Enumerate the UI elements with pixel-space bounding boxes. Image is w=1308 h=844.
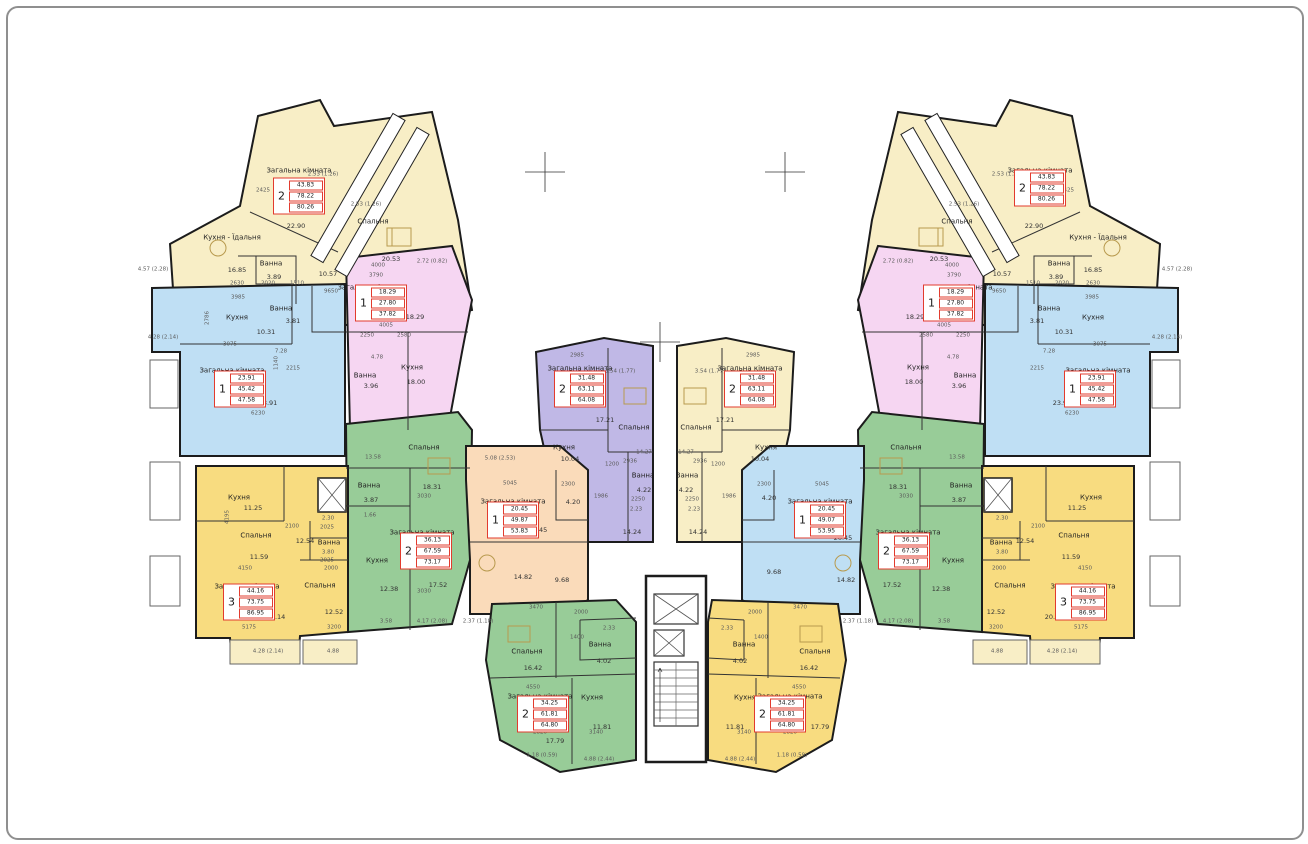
room-label-bedroom: Спальня — [240, 533, 271, 540]
room-label-bath: Ванна — [632, 473, 655, 480]
room-label-bedroom: Спальня — [941, 219, 972, 226]
room-area: 14.82 — [514, 574, 533, 581]
area-value: 86.95 — [1071, 608, 1105, 618]
room-area: 11.25 — [244, 505, 263, 512]
area-value: 31.48 — [570, 373, 604, 383]
area-value: 64.08 — [740, 395, 774, 405]
room-label-bedroom: Спальня — [408, 445, 439, 452]
area-value: 80.26 — [289, 202, 323, 212]
dimension: 1.18 (0.59) — [527, 753, 558, 759]
dimension: 1510 — [1026, 281, 1040, 287]
room-area: 12.54 — [1016, 538, 1035, 545]
room-area: 14.24 — [623, 529, 642, 536]
dimension: 2580 — [919, 333, 933, 339]
dimension: 2.33 — [721, 626, 733, 632]
room-area: 11.25 — [1068, 505, 1087, 512]
dimension: 2985 — [570, 353, 584, 359]
dimension: 4.88 — [327, 649, 339, 655]
dimension: 2936 — [623, 459, 637, 465]
dimension: 4005 — [379, 323, 393, 329]
dimension: 4005 — [937, 323, 951, 329]
dimension: 5045 — [503, 481, 517, 487]
room-area: 16.42 — [524, 665, 543, 672]
room-label-kitchen: Кухня — [755, 445, 777, 452]
room-label-kitchen: Кухня — [553, 445, 575, 452]
room-label-bath: Ванна — [318, 540, 341, 547]
apartment-stat-table: 2 31.4863.1164.08 — [554, 371, 606, 408]
room-area: 9.68 — [555, 577, 569, 584]
dimension: 3.80 — [322, 550, 334, 556]
room-label-kitchen: Кухня — [581, 695, 603, 702]
apartment-rooms-count: 2 — [556, 373, 569, 406]
room-area: 17.21 — [716, 417, 735, 424]
area-value: 49.87 — [503, 515, 537, 525]
area-value: 23.91 — [1080, 373, 1114, 383]
room-label-bedroom: Спальня — [994, 583, 1025, 590]
dimension: 2.37 (1.18) — [463, 619, 494, 625]
room-label-bath: Ванна — [954, 373, 977, 380]
room-label-bath: Ванна — [270, 306, 293, 313]
room-area: 10.57 — [993, 271, 1012, 278]
area-value: 44.16 — [239, 586, 273, 596]
wing-elevator-left — [318, 478, 346, 512]
dimension: 2.37 (1.18) — [843, 619, 874, 625]
dimension: 2250 — [631, 497, 645, 503]
dimension: 4.88 (2.44) — [584, 757, 615, 763]
dimension: 6230 — [251, 411, 265, 417]
dimension: 3.58 — [938, 619, 950, 625]
apartment-stat-table: 1 20.4549.8753.83 — [487, 502, 539, 539]
apartment-stat-table: 2 34.2561.8164.80 — [517, 696, 569, 733]
area-value: 36.13 — [894, 535, 928, 545]
area-value: 49.07 — [810, 515, 844, 525]
dimension: 2936 — [693, 459, 707, 465]
apartment-rooms-count: 2 — [519, 698, 532, 731]
area-value: 43.83 — [1030, 172, 1064, 182]
room-area: 12.54 — [296, 538, 315, 545]
dimension: 2250 — [685, 497, 699, 503]
apartment-rooms-count: 2 — [756, 698, 769, 731]
apartment-rooms-count: 2 — [402, 535, 415, 568]
apartment-rooms-count: 1 — [1066, 373, 1079, 406]
room-label-bath: Ванна — [260, 261, 283, 268]
dimension: 2100 — [285, 524, 299, 530]
room-label-bedroom: Спальня — [890, 445, 921, 452]
dimension: 4.57 (2.28) — [138, 267, 169, 273]
dimension: 3790 — [369, 273, 383, 279]
area-value: 64.08 — [570, 395, 604, 405]
dimension: 3790 — [947, 273, 961, 279]
dimension: 9650 — [324, 289, 338, 295]
area-value: 73.17 — [416, 557, 450, 567]
room-label-kitchen-dining: Кухня - Їдальня — [203, 235, 261, 242]
area-value: 36.13 — [416, 535, 450, 545]
room-label-kitchen: Кухня — [942, 558, 964, 565]
room-area: 18.31 — [889, 484, 908, 491]
room-label-bath: Ванна — [1038, 306, 1061, 313]
dimension: 4.17 (2.08) — [417, 619, 448, 625]
room-label-bedroom: Спальня — [799, 649, 830, 656]
area-value: 63.11 — [570, 384, 604, 394]
room-area: 22.90 — [1025, 223, 1044, 230]
dimension: 2.23 — [688, 507, 700, 513]
apartment-stat-table: 2 43.8378.2280.26 — [273, 178, 325, 215]
apartment-rooms-count: 1 — [796, 504, 809, 537]
area-value: 23.91 — [230, 373, 264, 383]
dimension: 2100 — [1031, 524, 1045, 530]
dimension: 14.27 — [678, 450, 694, 456]
room-area: 4.22 — [679, 487, 693, 494]
room-area: 18.29 — [406, 314, 425, 321]
area-value: 80.26 — [1030, 194, 1064, 204]
dimension: 3470 — [793, 605, 807, 611]
room-area: 4.20 — [566, 499, 580, 506]
room-label-bath: Ванна — [1048, 261, 1071, 268]
dimension: 3985 — [231, 295, 245, 301]
dimension: 3030 — [417, 494, 431, 500]
dimension: 2250 — [956, 333, 970, 339]
room-area: 10.31 — [257, 329, 276, 336]
dimension: 4.57 (2.28) — [1162, 267, 1193, 273]
room-area: 18.00 — [905, 379, 924, 386]
room-area: 11.59 — [1062, 554, 1081, 561]
area-value: 64.80 — [770, 720, 804, 730]
apartment-rooms-count: 2 — [1016, 172, 1029, 205]
dimension: 4.28 (2.14) — [148, 335, 179, 341]
room-area: 3.96 — [364, 383, 378, 390]
dimension: 2025 — [320, 525, 334, 531]
dimension: 5175 — [1074, 625, 1088, 631]
room-area: 18.00 — [407, 379, 426, 386]
dimension: 3030 — [899, 494, 913, 500]
area-value: 45.42 — [230, 384, 264, 394]
dimension: 4550 — [792, 685, 806, 691]
dimension: 7.28 — [275, 349, 287, 355]
room-area: 14.82 — [837, 577, 856, 584]
dimension: 1510 — [290, 281, 304, 287]
apartment-stat-table: 1 23.9145.4247.58 — [1064, 371, 1116, 408]
area-value: 34.25 — [533, 698, 567, 708]
area-value: 73.75 — [239, 597, 273, 607]
dimension: 3470 — [529, 605, 543, 611]
dimension: 3030 — [417, 589, 431, 595]
room-area: 3.81 — [286, 318, 300, 325]
room-area: 10.57 — [319, 271, 338, 278]
room-label-bath: Ванна — [990, 540, 1013, 547]
apartment-stat-table: 2 34.2561.8164.80 — [754, 696, 806, 733]
apartment-rooms-count: 1 — [489, 504, 502, 537]
room-label-kitchen: Кухня — [401, 365, 423, 372]
dimension: 2000 — [324, 566, 338, 572]
room-area: 4.22 — [637, 487, 651, 494]
room-area: 4.02 — [733, 658, 747, 665]
dimension: 9650 — [992, 289, 1006, 295]
dimension: 3.80 — [996, 550, 1008, 556]
room-area: 9.68 — [767, 569, 781, 576]
apartment-rooms-count: 2 — [880, 535, 893, 568]
dimension: 4.28 (2.14) — [1152, 335, 1183, 341]
dimension: 2300 — [561, 482, 575, 488]
room-area: 16.85 — [1084, 267, 1103, 274]
dimension: 1400 — [570, 635, 584, 641]
area-value: 53.95 — [810, 526, 844, 536]
dimension: 1.18 (0.59) — [777, 753, 808, 759]
room-area: 3.87 — [364, 497, 378, 504]
room-label-kitchen-dining: Кухня - Їдальня — [1069, 235, 1127, 242]
survey-crosshair — [525, 152, 805, 362]
room-label-bedroom: Спальня — [304, 583, 335, 590]
dimension: 2.72 (0.82) — [417, 259, 448, 265]
dimension: 5045 — [815, 482, 829, 488]
dimension: 14.27 — [636, 450, 652, 456]
dimension: 3200 — [989, 625, 1003, 631]
apartment-rooms-count: 3 — [225, 586, 238, 619]
apartment-stat-table: 2 36.1367.5973.17 — [400, 533, 452, 570]
room-label-bath: Ванна — [354, 373, 377, 380]
central-core — [646, 576, 706, 762]
area-value: 20.45 — [810, 504, 844, 514]
floor-plan-canvas: Загальна кімната Кухня - Їдальня 16.85 В… — [0, 0, 1308, 844]
dimension: 2.30 — [996, 516, 1008, 522]
room-area: 18.29 — [906, 314, 925, 321]
dimension: 1200 — [605, 462, 619, 468]
dimension: 4150 — [1078, 566, 1092, 572]
area-value: 61.81 — [533, 709, 567, 719]
dimension: 3075 — [1093, 342, 1107, 348]
room-label-bath: Ванна — [676, 473, 699, 480]
dimension: 3985 — [1085, 295, 1099, 301]
area-value: 27.80 — [939, 298, 973, 308]
dimension: 2630 — [1086, 281, 1100, 287]
room-label-kitchen: Кухня — [734, 695, 756, 702]
apartment-rooms-count: 1 — [216, 373, 229, 406]
apartment-stat-table: 1 18.2927.8037.82 — [355, 285, 407, 322]
dimension: 2.53 (1.26) — [949, 202, 980, 208]
room-area: 16.85 — [228, 267, 247, 274]
area-value: 20.45 — [503, 504, 537, 514]
apartment-stat-table: 2 36.1367.5973.17 — [878, 533, 930, 570]
apartment-rooms-count: 2 — [275, 180, 288, 213]
room-area: 10.04 — [561, 456, 580, 463]
room-area: 22.90 — [287, 223, 306, 230]
dimension: 13.58 — [365, 455, 381, 461]
room-area: 4.20 — [762, 495, 776, 502]
dimension: 2.53 (1.26) — [351, 202, 382, 208]
dimension: 2000 — [992, 566, 1006, 572]
apartment-rooms-count: 2 — [726, 373, 739, 406]
room-label-bath: Ванна — [733, 642, 756, 649]
dimension: 4.78 — [371, 355, 383, 361]
dimension: 4.88 — [991, 649, 1003, 655]
room-area: 17.79 — [811, 724, 830, 731]
area-value: 47.58 — [230, 395, 264, 405]
room-area: 16.42 — [800, 665, 819, 672]
dimension: 13.58 — [949, 455, 965, 461]
room-label-kitchen: Кухня — [1080, 495, 1102, 502]
room-label-bedroom: Спальня — [511, 649, 542, 656]
room-label-kitchen: Кухня — [226, 315, 248, 322]
apartment-stat-table: 2 31.4863.1164.08 — [724, 371, 776, 408]
room-label-kitchen: Кухня — [907, 365, 929, 372]
room-area: 10.04 — [751, 456, 770, 463]
room-area: 3.81 — [1030, 318, 1044, 325]
room-label-bedroom: Спальня — [680, 425, 711, 432]
area-value: 44.16 — [1071, 586, 1105, 596]
dimension: 4.17 (2.08) — [883, 619, 914, 625]
room-area: 12.52 — [987, 609, 1006, 616]
room-label-bedroom: Спальня — [357, 219, 388, 226]
dimension: 2000 — [574, 610, 588, 616]
area-value: 27.80 — [371, 298, 405, 308]
room-label-bedroom: Спальня — [1058, 533, 1089, 540]
apartment-stat-table: 2 43.8378.2280.26 — [1014, 170, 1066, 207]
room-label-bath: Ванна — [950, 483, 973, 490]
dimension: 2020 — [1055, 281, 1069, 287]
apartment-stat-table: 1 20.4549.0753.95 — [794, 502, 846, 539]
area-value: 73.17 — [894, 557, 928, 567]
dimension: 4.28 (2.14) — [1047, 649, 1078, 655]
area-value: 37.82 — [939, 309, 973, 319]
area-value: 61.81 — [770, 709, 804, 719]
dimension: 4550 — [526, 685, 540, 691]
area-value: 53.83 — [503, 526, 537, 536]
area-value: 34.25 — [770, 698, 804, 708]
dimension: 3140 — [737, 730, 751, 736]
dimension: 1140 — [274, 356, 280, 370]
dimension: 2.30 — [322, 516, 334, 522]
dimension: 2020 — [261, 281, 275, 287]
dimension: 4195 — [225, 510, 231, 524]
room-area: 14.24 — [689, 529, 708, 536]
apartment-stat-table: 1 23.9145.4247.58 — [214, 371, 266, 408]
dimension: 4.88 (2.44) — [725, 757, 756, 763]
dimension: 2300 — [757, 482, 771, 488]
apartment-stat-table: 1 18.2927.8037.82 — [923, 285, 975, 322]
apartment-rooms-count: 3 — [1057, 586, 1070, 619]
room-area: 11.59 — [250, 554, 269, 561]
room-area: 17.52 — [883, 582, 902, 589]
room-area: 12.38 — [380, 586, 399, 593]
dimension: 4000 — [945, 263, 959, 269]
dimension: 1400 — [754, 635, 768, 641]
dimension: 1986 — [594, 494, 608, 500]
dimension: 4000 — [371, 263, 385, 269]
dimension: 2000 — [748, 610, 762, 616]
area-value: 47.58 — [1080, 395, 1114, 405]
room-label-bedroom: Спальня — [618, 425, 649, 432]
area-value: 64.80 — [533, 720, 567, 730]
area-value: 73.75 — [1071, 597, 1105, 607]
room-label-bath: Ванна — [358, 483, 381, 490]
dimension: 7.28 — [1043, 349, 1055, 355]
wing-elevator-right — [984, 478, 1012, 512]
area-value: 18.29 — [371, 287, 405, 297]
apartment-rooms-count: 1 — [925, 287, 938, 320]
dimension: 3200 — [327, 625, 341, 631]
dimension: 2.33 — [603, 626, 615, 632]
dimension: 2580 — [397, 333, 411, 339]
dimension: 2985 — [746, 353, 760, 359]
room-area: 17.21 — [596, 417, 615, 424]
dimension: 3075 — [223, 342, 237, 348]
area-value: 86.95 — [239, 608, 273, 618]
room-area: 3.96 — [952, 383, 966, 390]
dimension: 3.58 — [380, 619, 392, 625]
dimension: 1986 — [722, 494, 736, 500]
dimension: 5.08 (2.53) — [485, 456, 516, 462]
dimension: 2786 — [205, 311, 211, 325]
room-area: 10.31 — [1055, 329, 1074, 336]
dimension: 1200 — [711, 462, 725, 468]
dimension: 2025 — [320, 558, 334, 564]
area-value: 67.59 — [894, 546, 928, 556]
room-area: 12.52 — [325, 609, 344, 616]
apartment-stat-table: 3 44.1673.7586.95 — [223, 584, 275, 621]
room-label-kitchen: Кухня — [228, 495, 250, 502]
room-area: 17.52 — [429, 582, 448, 589]
dimension: 2215 — [1030, 366, 1044, 372]
dimension: 1.66 — [364, 513, 376, 519]
dimension: 2630 — [230, 281, 244, 287]
room-area: 4.02 — [597, 658, 611, 665]
area-value: 45.42 — [1080, 384, 1114, 394]
area-value: 31.48 — [740, 373, 774, 383]
room-label-kitchen: Кухня — [1082, 315, 1104, 322]
room-area: 12.38 — [932, 586, 951, 593]
area-value: 67.59 — [416, 546, 450, 556]
dimension: 4.78 — [947, 355, 959, 361]
room-label-kitchen: Кухня — [366, 558, 388, 565]
area-value: 63.11 — [740, 384, 774, 394]
dimension: 2425 — [256, 188, 270, 194]
dimension: 4150 — [238, 566, 252, 572]
room-area: 18.31 — [423, 484, 442, 491]
dimension: 3.54 (1.77) — [695, 369, 726, 375]
area-value: 37.82 — [371, 309, 405, 319]
dimension: 2250 — [360, 333, 374, 339]
room-area: 17.79 — [546, 738, 565, 745]
dimension: 3140 — [589, 730, 603, 736]
dimension: 3.54 (1.77) — [605, 369, 636, 375]
dimension: 2.72 (0.82) — [883, 259, 914, 265]
area-value: 78.22 — [1030, 183, 1064, 193]
dimension: 4.28 (2.14) — [253, 649, 284, 655]
room-area: 3.87 — [952, 497, 966, 504]
dimension: 2215 — [286, 366, 300, 372]
dimension: 2.23 — [630, 507, 642, 513]
area-value: 78.22 — [289, 191, 323, 201]
floor-plan-drawing — [0, 0, 1308, 844]
dimension: 6230 — [1065, 411, 1079, 417]
area-value: 18.29 — [939, 287, 973, 297]
dimension: 5175 — [242, 625, 256, 631]
room-label-bath: Ванна — [589, 642, 612, 649]
apartment-stat-table: 3 44.1673.7586.95 — [1055, 584, 1107, 621]
apartment-rooms-count: 1 — [357, 287, 370, 320]
area-value: 43.83 — [289, 180, 323, 190]
